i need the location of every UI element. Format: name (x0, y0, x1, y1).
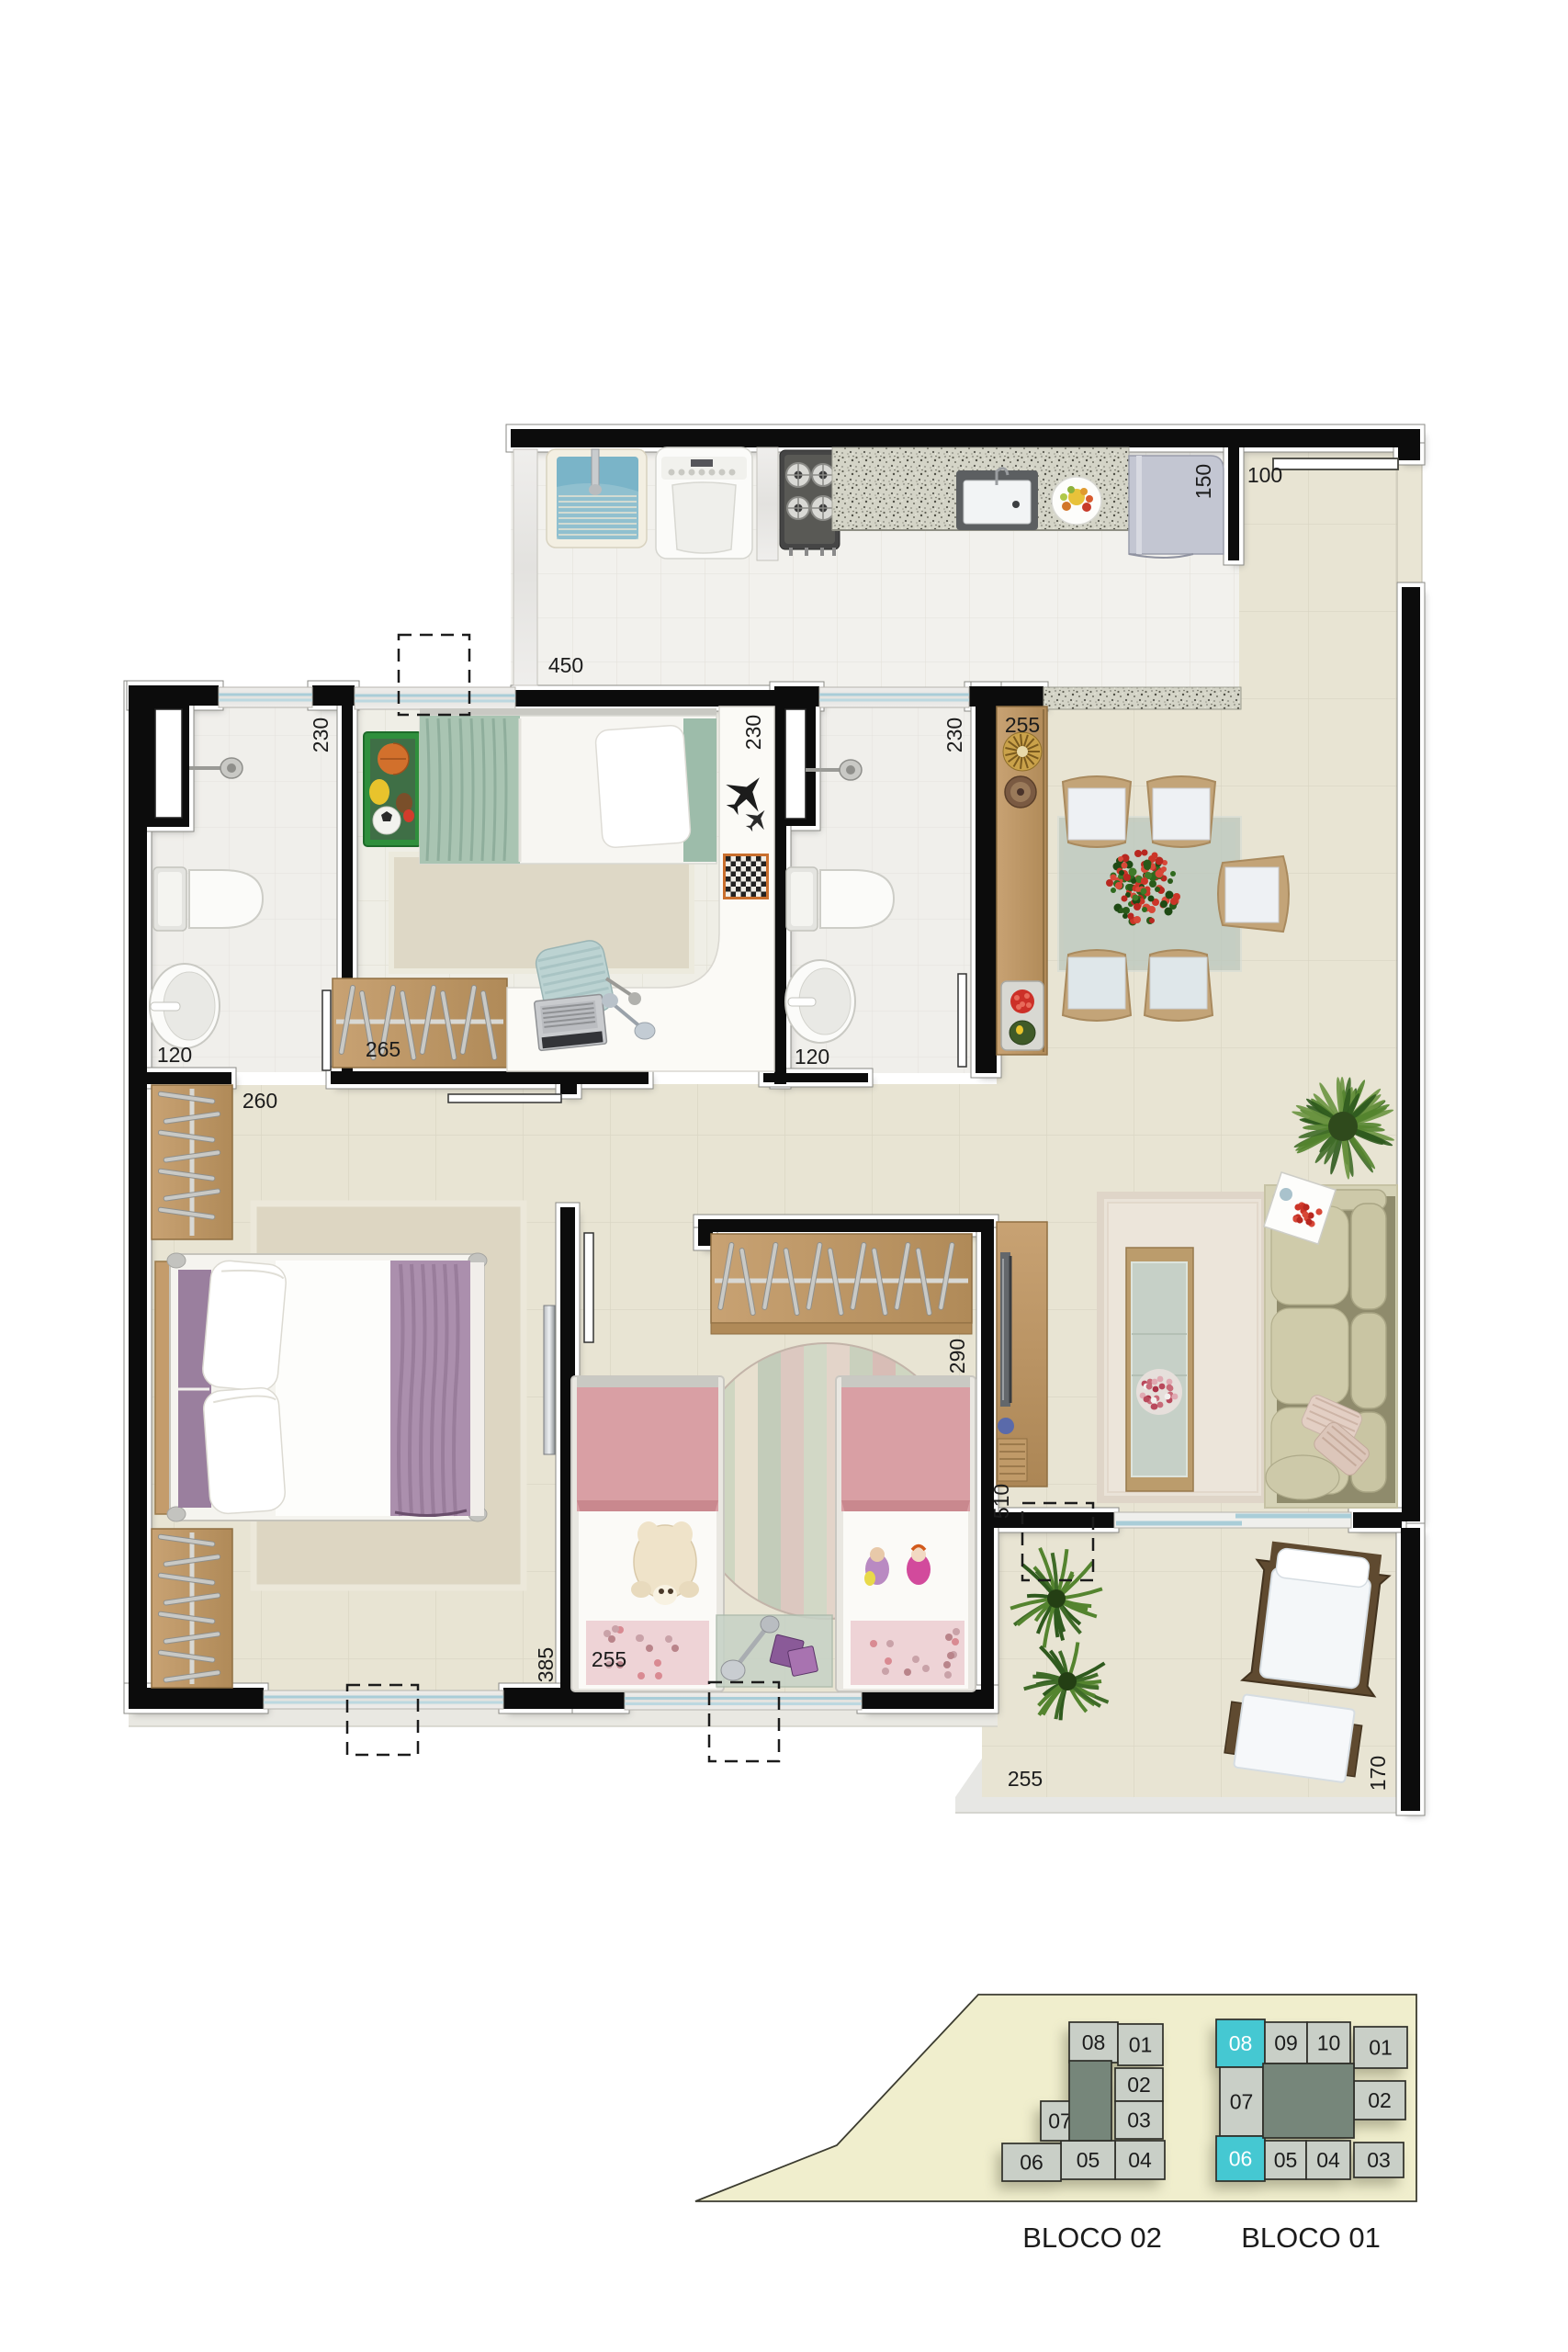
svg-text:100: 100 (1247, 463, 1282, 487)
svg-text:03: 03 (1367, 2148, 1391, 2172)
svg-text:120: 120 (157, 1043, 192, 1067)
svg-text:06: 06 (1229, 2147, 1253, 2171)
svg-text:03: 03 (1127, 2109, 1151, 2132)
svg-text:02: 02 (1368, 2088, 1392, 2112)
svg-text:08: 08 (1082, 2030, 1106, 2054)
svg-text:05: 05 (1274, 2148, 1298, 2172)
svg-text:120: 120 (795, 1045, 829, 1069)
svg-text:170: 170 (1366, 1756, 1390, 1791)
svg-text:290: 290 (945, 1339, 969, 1374)
svg-text:01: 01 (1369, 2036, 1393, 2060)
svg-text:BLOCO 02: BLOCO 02 (1022, 2222, 1162, 2254)
svg-text:230: 230 (309, 718, 333, 752)
svg-text:255: 255 (592, 1647, 626, 1671)
svg-text:02: 02 (1127, 2073, 1151, 2097)
svg-text:385: 385 (534, 1647, 558, 1682)
svg-text:07: 07 (1048, 2109, 1072, 2133)
svg-text:07: 07 (1230, 2090, 1254, 2114)
svg-text:05: 05 (1077, 2148, 1100, 2172)
svg-text:BLOCO 01: BLOCO 01 (1241, 2222, 1381, 2254)
svg-text:10: 10 (1317, 2031, 1341, 2055)
svg-text:04: 04 (1128, 2148, 1152, 2172)
svg-text:230: 230 (942, 718, 966, 752)
svg-text:09: 09 (1274, 2031, 1298, 2055)
svg-text:06: 06 (1020, 2151, 1043, 2175)
svg-text:08: 08 (1229, 2031, 1253, 2055)
svg-text:260: 260 (243, 1089, 277, 1113)
svg-text:510: 510 (989, 1484, 1013, 1519)
svg-text:450: 450 (548, 653, 583, 677)
svg-text:04: 04 (1316, 2148, 1340, 2172)
svg-text:230: 230 (741, 715, 765, 750)
svg-text:265: 265 (366, 1037, 400, 1061)
svg-text:255: 255 (1008, 1767, 1043, 1791)
svg-text:150: 150 (1191, 464, 1215, 499)
svg-text:01: 01 (1129, 2033, 1153, 2057)
svg-text:255: 255 (1005, 713, 1040, 737)
